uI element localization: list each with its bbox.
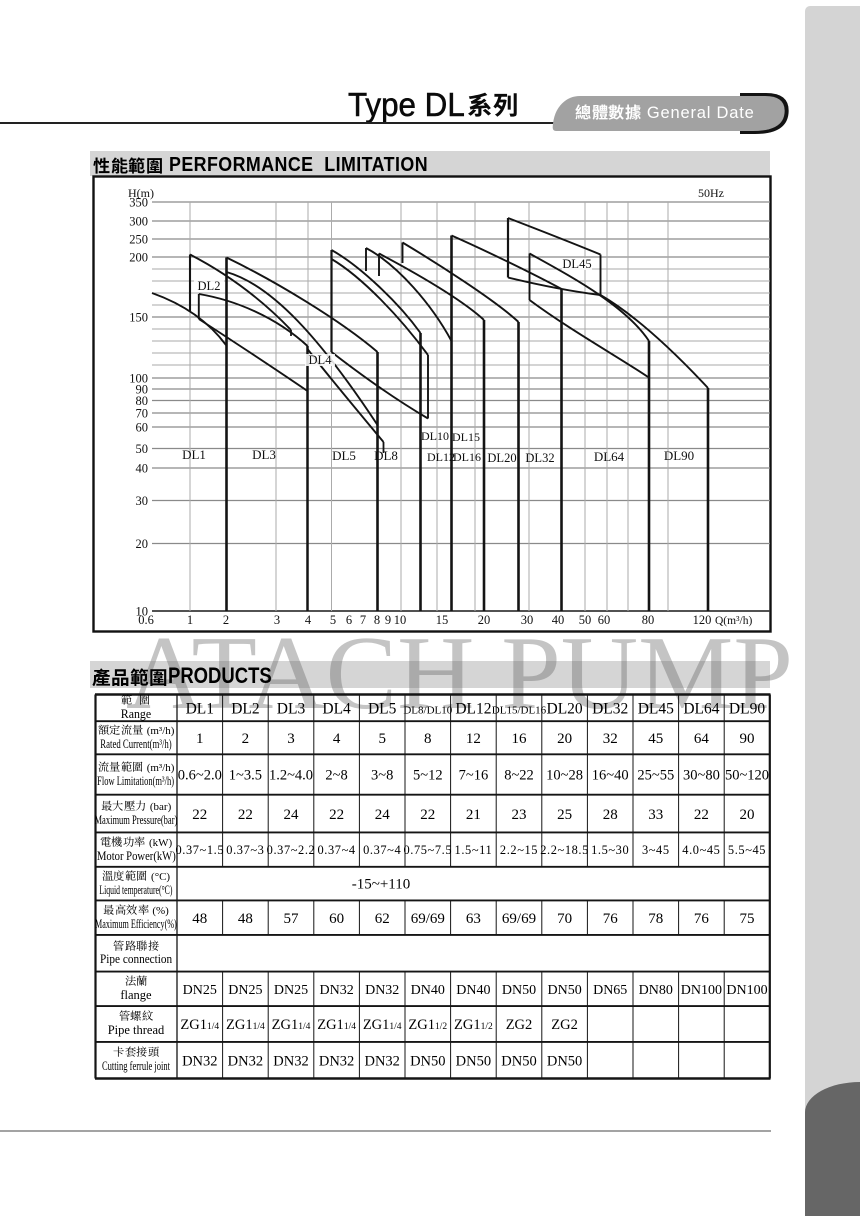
svg-text:76: 76 — [603, 911, 619, 927]
svg-text:5~12: 5~12 — [413, 768, 443, 784]
svg-text:DL12: DL12 — [455, 700, 491, 717]
svg-text:33: 33 — [648, 807, 663, 823]
svg-text:ZG11/4: ZG11/4 — [363, 1017, 402, 1033]
svg-text:48: 48 — [192, 911, 207, 927]
svg-text:1.2~4.0: 1.2~4.0 — [269, 768, 313, 784]
svg-text:76: 76 — [694, 911, 710, 927]
svg-text:3~8: 3~8 — [371, 768, 393, 784]
svg-text:DN25: DN25 — [274, 983, 308, 998]
svg-text:16: 16 — [512, 731, 528, 747]
svg-text:DN25: DN25 — [228, 983, 262, 998]
svg-text:DN32: DN32 — [182, 1053, 217, 1069]
svg-text:22: 22 — [238, 807, 253, 823]
svg-text:2~8: 2~8 — [325, 768, 347, 784]
svg-text:DN65: DN65 — [593, 983, 627, 998]
svg-text:DN32: DN32 — [273, 1053, 308, 1069]
svg-text:8: 8 — [424, 731, 432, 747]
svg-text:32: 32 — [603, 731, 618, 747]
svg-text:DL1: DL1 — [186, 700, 214, 717]
svg-text:10~28: 10~28 — [546, 768, 583, 784]
svg-text:DN50: DN50 — [456, 1053, 491, 1069]
svg-text:8~22: 8~22 — [504, 768, 534, 784]
svg-text:64: 64 — [694, 731, 710, 747]
svg-text:DN80: DN80 — [639, 983, 673, 998]
svg-text:ZG11/2: ZG11/2 — [454, 1017, 493, 1033]
svg-text:1~3.5: 1~3.5 — [229, 768, 262, 784]
svg-text:2.2~15: 2.2~15 — [500, 843, 538, 857]
svg-text:ZG11/4: ZG11/4 — [272, 1017, 311, 1033]
svg-text:57: 57 — [284, 911, 300, 927]
svg-text:25~55: 25~55 — [637, 768, 674, 784]
svg-text:DN50: DN50 — [547, 1053, 582, 1069]
svg-text:0.37~4: 0.37~4 — [363, 843, 401, 857]
svg-text:DN100: DN100 — [726, 983, 767, 998]
svg-text:3: 3 — [287, 731, 295, 747]
svg-text:0.37~3: 0.37~3 — [226, 843, 264, 857]
svg-text:22: 22 — [329, 807, 344, 823]
svg-text:48: 48 — [238, 911, 253, 927]
svg-text:DN32: DN32 — [319, 983, 353, 998]
svg-text:ZG2: ZG2 — [506, 1017, 533, 1033]
svg-text:90: 90 — [740, 731, 755, 747]
svg-text:ZG2: ZG2 — [551, 1017, 578, 1033]
svg-text:DN50: DN50 — [501, 1053, 536, 1069]
svg-text:DN32: DN32 — [319, 1053, 354, 1069]
svg-text:16~40: 16~40 — [592, 768, 629, 784]
svg-text:ZG11/4: ZG11/4 — [180, 1017, 219, 1033]
svg-text:75: 75 — [740, 911, 755, 927]
svg-text:24: 24 — [284, 807, 300, 823]
svg-text:DN32: DN32 — [228, 1053, 263, 1069]
svg-text:69/69: 69/69 — [411, 911, 445, 927]
svg-text:DN50: DN50 — [547, 983, 581, 998]
svg-text:25: 25 — [557, 807, 572, 823]
svg-text:DL4: DL4 — [322, 700, 351, 717]
svg-text:DL8/DL10: DL8/DL10 — [403, 704, 452, 716]
svg-text:5.5~45: 5.5~45 — [728, 843, 766, 857]
svg-text:78: 78 — [648, 911, 663, 927]
svg-text:DN40: DN40 — [411, 983, 445, 998]
svg-text:62: 62 — [375, 911, 390, 927]
svg-text:3~45: 3~45 — [642, 843, 670, 857]
svg-text:1.5~30: 1.5~30 — [591, 843, 629, 857]
svg-text:DL2: DL2 — [231, 700, 259, 717]
svg-text:28: 28 — [603, 807, 618, 823]
svg-text:2: 2 — [242, 731, 250, 747]
svg-text:5: 5 — [378, 731, 386, 747]
svg-text:DL3: DL3 — [277, 700, 306, 717]
svg-text:1.5~11: 1.5~11 — [455, 843, 493, 857]
svg-text:DL15/DL16: DL15/DL16 — [492, 704, 547, 716]
svg-text:DN32: DN32 — [365, 983, 399, 998]
svg-text:0.37~4: 0.37~4 — [318, 843, 356, 857]
svg-text:ZG11/4: ZG11/4 — [317, 1017, 356, 1033]
svg-text:0.37~1.5: 0.37~1.5 — [175, 843, 224, 857]
svg-text:DL64: DL64 — [683, 700, 719, 717]
svg-text:20: 20 — [740, 807, 755, 823]
svg-text:0.6~2.0: 0.6~2.0 — [178, 768, 222, 784]
svg-text:22: 22 — [694, 807, 709, 823]
svg-text:23: 23 — [512, 807, 527, 823]
svg-text:22: 22 — [420, 807, 435, 823]
svg-text:45: 45 — [648, 731, 663, 747]
svg-text:ZG11/2: ZG11/2 — [408, 1017, 447, 1033]
svg-text:0.37~2.2: 0.37~2.2 — [267, 843, 316, 857]
svg-text:DN32: DN32 — [364, 1053, 399, 1069]
svg-text:22: 22 — [192, 807, 207, 823]
svg-text:DN40: DN40 — [456, 983, 490, 998]
svg-text:DL5: DL5 — [368, 700, 397, 717]
svg-text:1: 1 — [196, 731, 204, 747]
svg-text:DL45: DL45 — [638, 700, 674, 717]
svg-text:2.2~18.5: 2.2~18.5 — [540, 843, 589, 857]
svg-text:70: 70 — [557, 911, 572, 927]
svg-text:20: 20 — [557, 731, 572, 747]
svg-text:DN50: DN50 — [410, 1053, 445, 1069]
svg-text:-15~+110: -15~+110 — [352, 877, 411, 893]
svg-text:69/69: 69/69 — [502, 911, 536, 927]
svg-text:21: 21 — [466, 807, 481, 823]
svg-text:50~120: 50~120 — [725, 768, 769, 784]
svg-text:30~80: 30~80 — [683, 768, 720, 784]
svg-text:DN25: DN25 — [183, 983, 217, 998]
svg-text:4.0~45: 4.0~45 — [682, 843, 720, 857]
svg-text:7~16: 7~16 — [459, 768, 489, 784]
svg-text:60: 60 — [329, 911, 344, 927]
svg-text:4: 4 — [333, 731, 341, 747]
svg-text:63: 63 — [466, 911, 481, 927]
svg-text:DL90: DL90 — [729, 700, 765, 717]
svg-text:DL32: DL32 — [592, 700, 628, 717]
svg-text:12: 12 — [466, 731, 481, 747]
svg-text:DN100: DN100 — [681, 983, 722, 998]
svg-text:DL20: DL20 — [547, 700, 583, 717]
svg-text:0.75~7.5: 0.75~7.5 — [403, 843, 452, 857]
svg-text:24: 24 — [375, 807, 391, 823]
svg-text:ZG11/4: ZG11/4 — [226, 1017, 265, 1033]
svg-text:DN50: DN50 — [502, 983, 536, 998]
